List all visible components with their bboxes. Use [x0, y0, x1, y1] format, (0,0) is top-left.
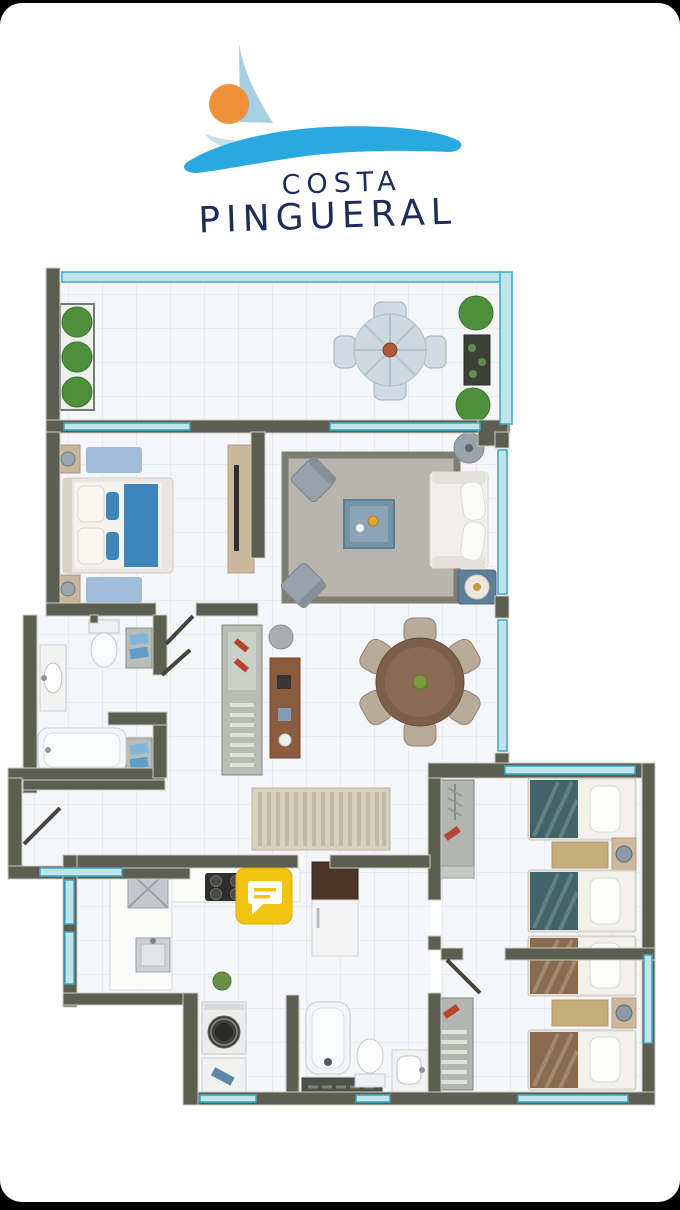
- tub-faucet: [45, 747, 51, 753]
- toilet: [89, 620, 119, 667]
- wall: [251, 432, 265, 558]
- table-lamp: [61, 452, 75, 466]
- window: [200, 1095, 256, 1102]
- double-bed: [63, 478, 173, 573]
- wall: [183, 993, 198, 1105]
- wardrobe-shelf: [436, 866, 474, 878]
- sliding-door-glass: [330, 423, 480, 430]
- wall: [330, 855, 430, 868]
- wall: [23, 615, 37, 793]
- sofa-armrest: [432, 472, 486, 484]
- terrace-railing-glass: [62, 272, 502, 282]
- comment-marker[interactable]: [236, 868, 292, 924]
- bedside-rug: [86, 447, 142, 473]
- wardrobe-shelf: [228, 632, 256, 690]
- table-decor: [368, 516, 378, 526]
- sofa: [430, 472, 488, 568]
- floor-lamp-center: [465, 444, 473, 452]
- window: [644, 955, 652, 1043]
- costa-pingueral-logo: COSTA PINGUERAL: [0, 0, 680, 260]
- wall: [495, 596, 509, 618]
- faucet: [419, 1067, 425, 1073]
- plant-icon: [62, 342, 92, 372]
- bathtub: [306, 1002, 350, 1074]
- wall: [8, 778, 22, 878]
- sun-icon: [209, 84, 249, 124]
- towel-cabinet: [126, 628, 152, 668]
- dresser: [228, 445, 254, 573]
- centerpiece-plant: [413, 675, 427, 689]
- bubble-text-line: [254, 895, 270, 899]
- bedside-rug: [552, 842, 608, 868]
- wall: [46, 432, 60, 615]
- terrace-railing-glass: [500, 272, 512, 424]
- pillow: [590, 1037, 620, 1082]
- wall: [428, 778, 441, 900]
- window: [505, 766, 635, 774]
- pillow: [78, 486, 104, 522]
- table-decor: [356, 524, 364, 532]
- accent-pillow: [106, 492, 119, 520]
- window: [65, 932, 74, 984]
- plant-icon: [459, 296, 493, 330]
- plant-icon: [213, 972, 231, 990]
- bubble-text-line: [254, 888, 276, 892]
- pillow: [78, 528, 104, 564]
- laundry: [202, 1002, 246, 1096]
- console-table: [270, 658, 300, 758]
- window: [40, 868, 122, 876]
- wall: [108, 712, 167, 725]
- striped-runner-rug: [252, 788, 390, 850]
- wall: [63, 993, 198, 1005]
- wall: [8, 768, 165, 780]
- wall: [642, 763, 655, 1105]
- tray-decor: [473, 583, 481, 591]
- wall: [428, 993, 441, 1092]
- coffee-table: [344, 500, 394, 548]
- washer-panel: [204, 1004, 244, 1010]
- drain: [324, 1058, 332, 1066]
- wall: [495, 432, 509, 448]
- table-lamp: [616, 1005, 632, 1021]
- toilet-tank: [355, 1074, 385, 1087]
- living-room: [280, 433, 496, 610]
- outdoor-chair: [424, 336, 446, 368]
- accent-pillow: [106, 532, 119, 560]
- sink: [397, 1056, 421, 1084]
- leaf: [469, 370, 477, 378]
- window: [356, 1095, 390, 1102]
- toilet-bowl: [357, 1039, 383, 1073]
- plant-icon: [456, 388, 490, 422]
- wall: [90, 615, 98, 623]
- planter-box: [464, 335, 490, 385]
- plant-icon: [62, 307, 92, 337]
- faucet: [150, 938, 156, 944]
- table-centerpiece: [383, 343, 397, 357]
- toilet: [355, 1039, 385, 1087]
- prep-sink: [136, 938, 170, 972]
- pillow: [590, 786, 620, 832]
- decor-figure: [277, 675, 291, 689]
- toilet-bowl: [91, 633, 117, 667]
- table-lamp: [61, 582, 75, 596]
- wall: [153, 615, 167, 675]
- wall: [46, 603, 156, 616]
- washing-machine: [202, 1002, 246, 1054]
- faucet: [41, 675, 47, 681]
- speech-bubble-icon: [248, 881, 282, 904]
- leaf: [478, 358, 486, 366]
- pillow: [590, 878, 620, 924]
- single-bed-brown: [528, 1030, 636, 1090]
- table-lamp: [616, 846, 632, 862]
- wall: [505, 948, 655, 960]
- bathtub: [38, 728, 126, 772]
- headboard: [63, 478, 72, 573]
- mobile-screenshot: COSTA PINGUERAL: [0, 0, 680, 1210]
- wall: [46, 268, 60, 432]
- window: [498, 450, 507, 594]
- outdoor-chair: [334, 336, 356, 368]
- wall: [196, 603, 258, 616]
- single-bed-teal: [528, 870, 636, 932]
- single-bed-brown: [528, 936, 636, 996]
- bedside-rug: [86, 577, 142, 603]
- refrigerator: [312, 900, 358, 956]
- wardrobe-shelves: [230, 705, 254, 765]
- logo-text-line2: PINGUERAL: [198, 192, 458, 242]
- decor-frame: [278, 708, 291, 721]
- window: [498, 620, 507, 751]
- wall: [428, 936, 441, 950]
- single-bed-teal: [528, 778, 636, 840]
- plant-icon: [62, 377, 92, 407]
- window: [65, 880, 74, 924]
- sliding-door-glass: [64, 423, 190, 430]
- decor-bowl: [279, 734, 291, 746]
- leaf: [468, 344, 476, 352]
- bedside-rug: [552, 1000, 608, 1026]
- tv: [234, 465, 239, 551]
- bed-runner: [124, 484, 158, 567]
- window: [518, 1095, 628, 1102]
- pouf: [269, 625, 293, 649]
- wall: [153, 725, 167, 778]
- wall: [441, 948, 463, 960]
- bathroom-vanity: [392, 1050, 428, 1094]
- floor-plan: [0, 260, 680, 1110]
- wardrobe: [436, 780, 474, 878]
- wall: [63, 855, 298, 868]
- wall: [286, 995, 299, 1092]
- sailboat-icon: [184, 44, 461, 173]
- side-table: [458, 570, 496, 604]
- wave-icon: [184, 126, 461, 173]
